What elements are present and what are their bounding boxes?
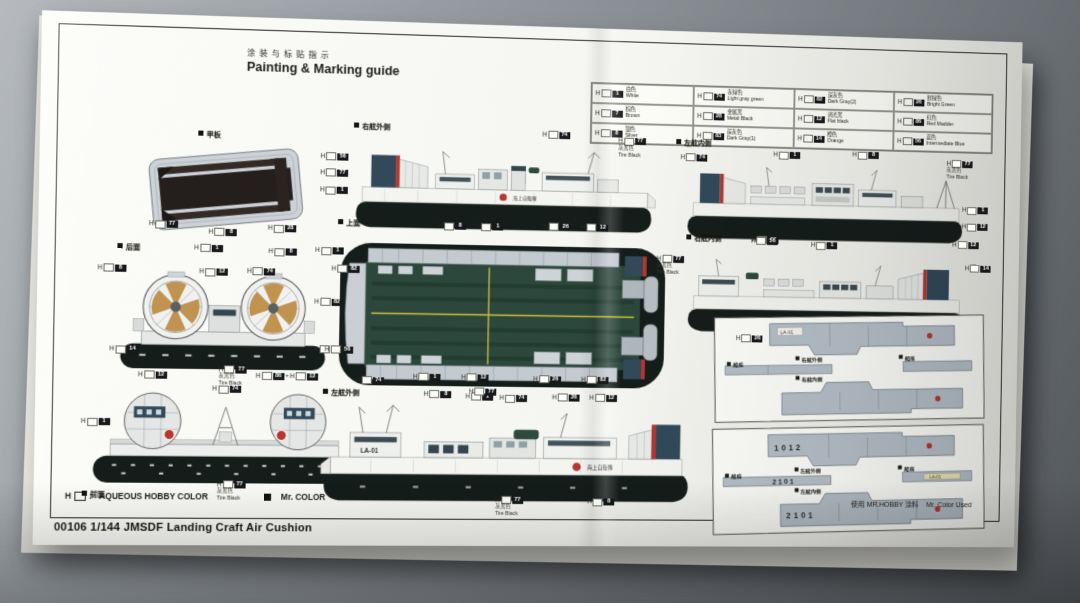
filled-box-icon [263,494,270,501]
paint-table-cell: H86红色Red Madder [894,112,993,134]
paint-table-cell: H7棕色Brown [591,103,693,126]
paint-callout: H8 [438,222,466,231]
paint-callout: H82 [581,376,608,384]
paint-callout: H1 [194,244,223,253]
paint-callout: H1 [476,223,504,232]
ship-side-port-outboard-illustration: LA-01 海上自衛隊 [317,400,695,511]
usage-english: Mr. Color Used [926,500,971,510]
paint-callout: H1 [773,151,800,160]
sponson-box-2-illustration: 1012 2101 2101 LA-01 [711,423,986,536]
paint-table-cell: H28金属黑Metal Black [693,106,794,129]
view-label-port-inboard: 左舷内侧 [676,138,711,149]
view-label-rear: 后面 [117,242,140,253]
view-label-front: 前面 [82,490,105,500]
propeller-shroud-right [241,273,306,341]
paint-callout: H12 [138,371,167,380]
paint-callout: H74 [542,131,569,140]
paint-callout: H77 [469,388,497,396]
paint-callout: H8 [268,248,296,257]
hull-number-top: 1012 [774,443,803,452]
hull-number-strip: 2101 [772,478,795,486]
view-label-starboard-inboard: 右舷内侧 [686,233,721,244]
instruction-sheet: 涂装与标贴指示 Painting & Marking guide H1白色Whi… [33,10,1023,547]
paint-callout: H56 [320,152,348,161]
paint-callout: H1 [811,241,838,249]
view-rear: 后面 [90,242,358,389]
product-title: 00106 1/144 JMSDF Landing Craft Air Cush… [54,521,312,534]
view-label-starboard-outboard: 右舷外侧 [354,121,391,132]
stern-fin [371,155,396,188]
paint-usage-note: 使用 MR.HOBBY 涂料 Mr. Color Used [851,500,972,510]
deck-ramp-illustration [144,143,307,237]
usage-chinese: 使用 MR.HOBBY 涂料 [851,500,919,510]
sponson-marking-box-1: LA-01 右舷外侧右舷内侧船底船底 [713,312,986,426]
aqueous-legend-text: AQUEOUS HOBBY COLOR [99,492,208,502]
paint-callout: H74 [356,376,384,384]
sponson-tag-text: LA-01 [780,330,793,336]
hull-number-bottom: 2101 [786,511,815,520]
sponson-tag-text: LA-01 [930,474,942,479]
ship-rear-view-illustration [115,269,331,380]
paint-callout: H26 [533,376,561,384]
sponson-box-1-illustration: LA-01 [713,312,986,426]
paint-callout: H12 [461,373,489,381]
shroud-front-left [124,393,182,449]
paint-callout: H77 [320,168,348,177]
paint-callout: H12 [581,223,608,232]
propeller-shroud-left [143,271,209,339]
paint-callout: H56 [751,237,778,245]
paint-callout: H1 [320,186,348,195]
paint-table-cell: H12消光黑Flat black [794,109,894,131]
view-label-port-outboard: 左舷外侧 [323,388,360,399]
view-port-outboard: 左舷外侧 LA-01 海上自衛隊 [304,371,707,516]
page-title: 涂装与标贴指示 Painting & Marking guide [247,47,400,78]
paint-callout: H1 [413,373,441,381]
hull-text: 海上自衛隊 [587,464,614,472]
paint-callout: H26 [544,222,571,231]
view-label-top: 上面 [338,218,360,229]
paint-callout: H8 [852,151,879,160]
view-deck: 甲板 H77H8H28 [130,128,317,246]
view-label-deck: 甲板 [198,129,221,140]
hull-code-text: LA-01 [360,448,378,455]
photo-of-instruction-sheet: { "sheet": { "title": { "cn": "涂装与标贴指示",… [0,0,1080,603]
sponson-marking-box-2: 1012 2101 2101 LA-01 左舷外侧左舷内侧船底船底 [711,423,986,536]
paint-callout: H82 [331,265,359,274]
paint-callout: H12 [952,241,978,249]
mr-color-legend-text: Mr. COLOR [281,493,326,502]
